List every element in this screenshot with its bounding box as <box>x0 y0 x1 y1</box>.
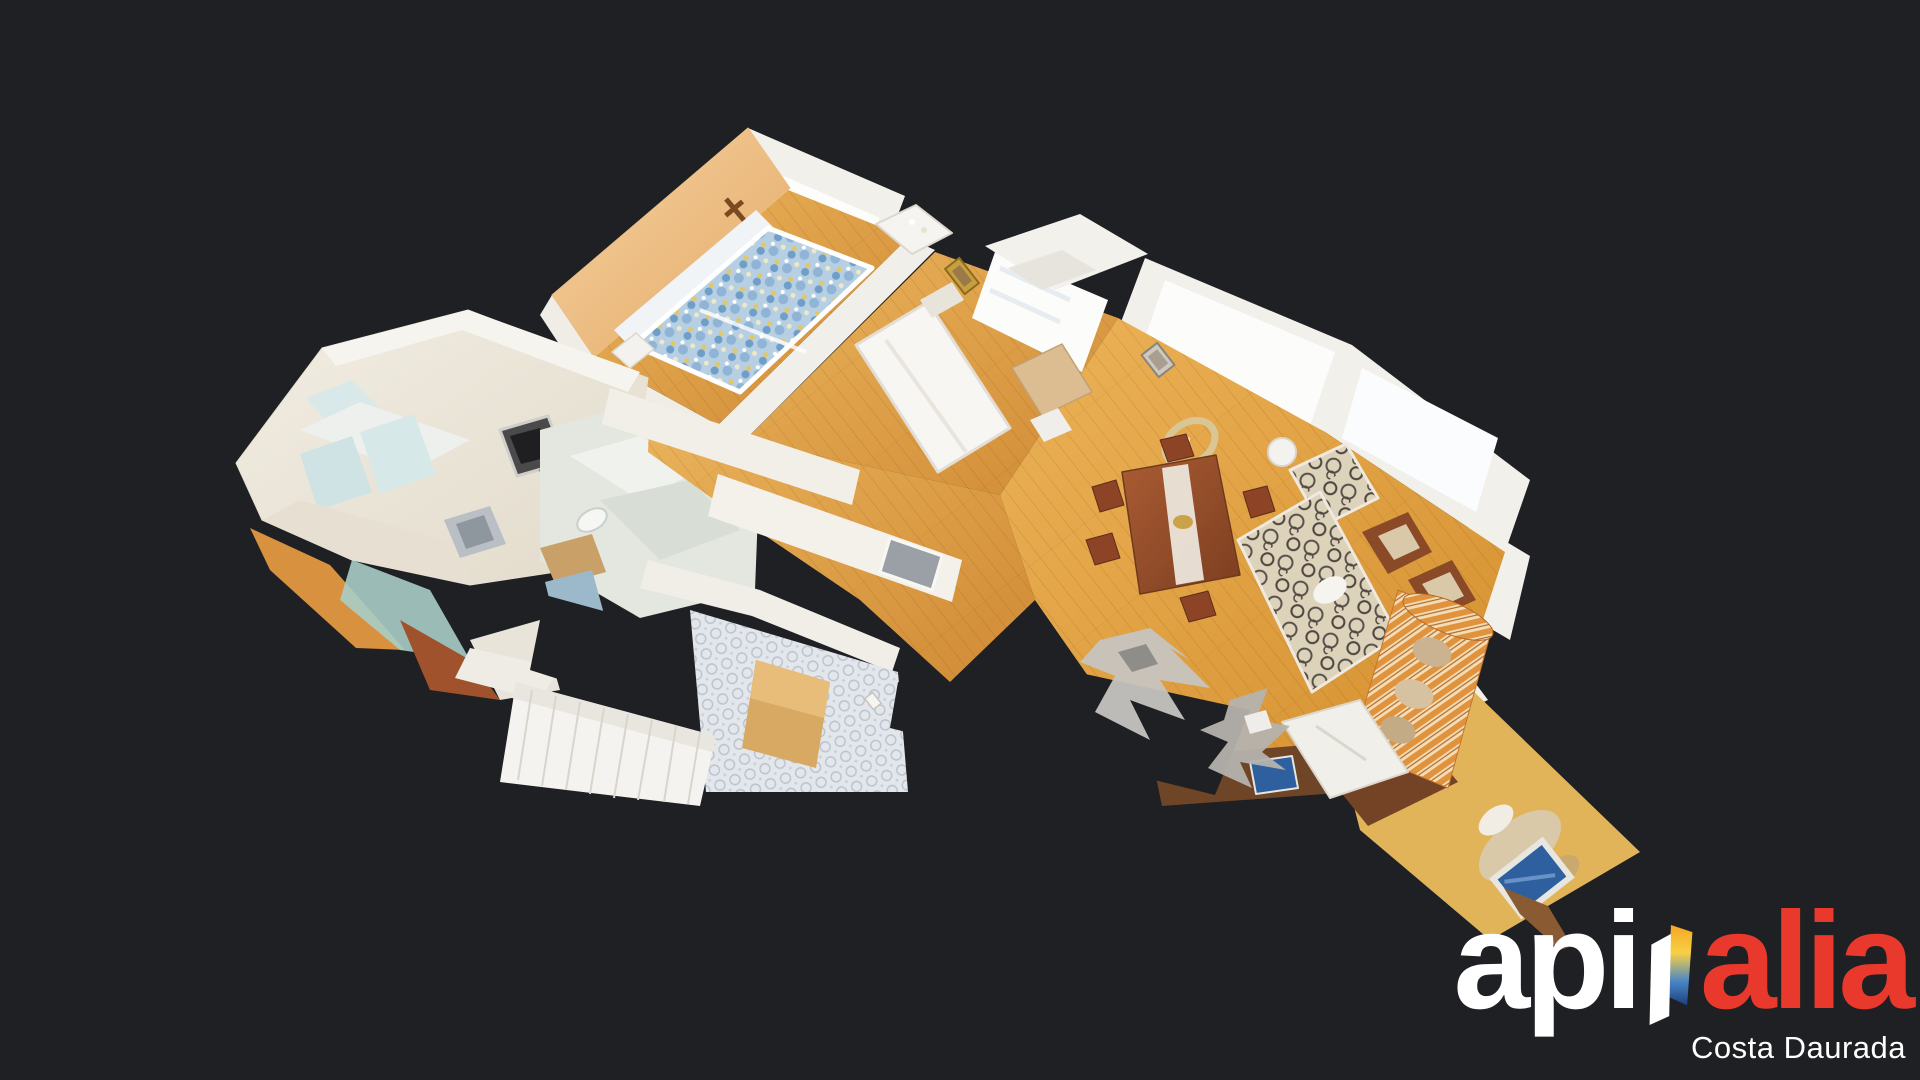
logo-text-alia: alia <box>1700 908 1910 1016</box>
agency-logo: api alia Costa Daurada <box>1453 908 1910 1066</box>
viewer-stage: api alia Costa Daurada <box>0 0 1920 1080</box>
logo-wordmark: api alia <box>1453 908 1910 1016</box>
side-table-lamp <box>1268 438 1296 466</box>
logo-door-icon <box>1646 920 1696 1030</box>
logo-text-api: api <box>1453 908 1637 1016</box>
